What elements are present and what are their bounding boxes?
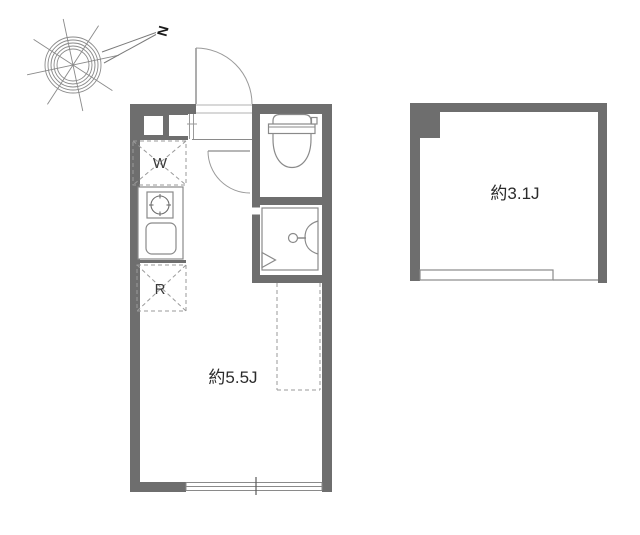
interior-door [208, 151, 250, 193]
shower-room [252, 208, 318, 271]
main-room-area-label: 約5.5J [208, 368, 257, 387]
entrance-closet [140, 112, 188, 140]
compass-rose [27, 19, 119, 111]
kitchen-counter [133, 187, 186, 263]
wall-left [130, 104, 140, 492]
bed-space-dashed [277, 283, 320, 390]
closet-compartment [169, 115, 188, 136]
shower-door-triangle-icon [262, 253, 276, 268]
entrance-door [196, 48, 252, 104]
north-label: N [154, 24, 172, 38]
counter-edge [133, 260, 186, 263]
side-wall-left [410, 138, 420, 281]
fridge-label: R [155, 281, 166, 298]
wall-top-right [252, 104, 332, 114]
side-wall-corner-block [410, 103, 440, 138]
floorplan-svg: N [0, 0, 640, 535]
toilet-tank [269, 124, 316, 134]
toilet-icon [269, 115, 318, 168]
wall-toilet-bottom [252, 197, 332, 205]
wall-shower-bottom [252, 275, 332, 283]
washer-label: W [153, 155, 168, 172]
side-room-window [420, 270, 598, 280]
wall-bottom-stub [130, 482, 186, 492]
side-wall-right [598, 103, 607, 283]
interior-door-arc [208, 151, 250, 193]
side-room-area-label: 約3.1J [490, 184, 539, 203]
closet-compartment [144, 116, 163, 135]
shower-door-gap [252, 208, 260, 215]
kitchen-sink-icon [146, 223, 176, 254]
floorplan-canvas: N [0, 0, 640, 535]
entrance-door-arc [196, 48, 252, 104]
entrance-door-frame [187, 114, 197, 139]
entrance-opening [196, 105, 252, 113]
north-arrow [102, 33, 156, 64]
faucet-knob-icon [289, 234, 298, 243]
toilet-flush-button [312, 118, 318, 125]
main-room-window [186, 477, 322, 495]
toilet-bowl [273, 115, 311, 168]
wall-right [322, 104, 332, 492]
compass-spokes [27, 19, 119, 111]
washbasin-icon [305, 221, 318, 254]
